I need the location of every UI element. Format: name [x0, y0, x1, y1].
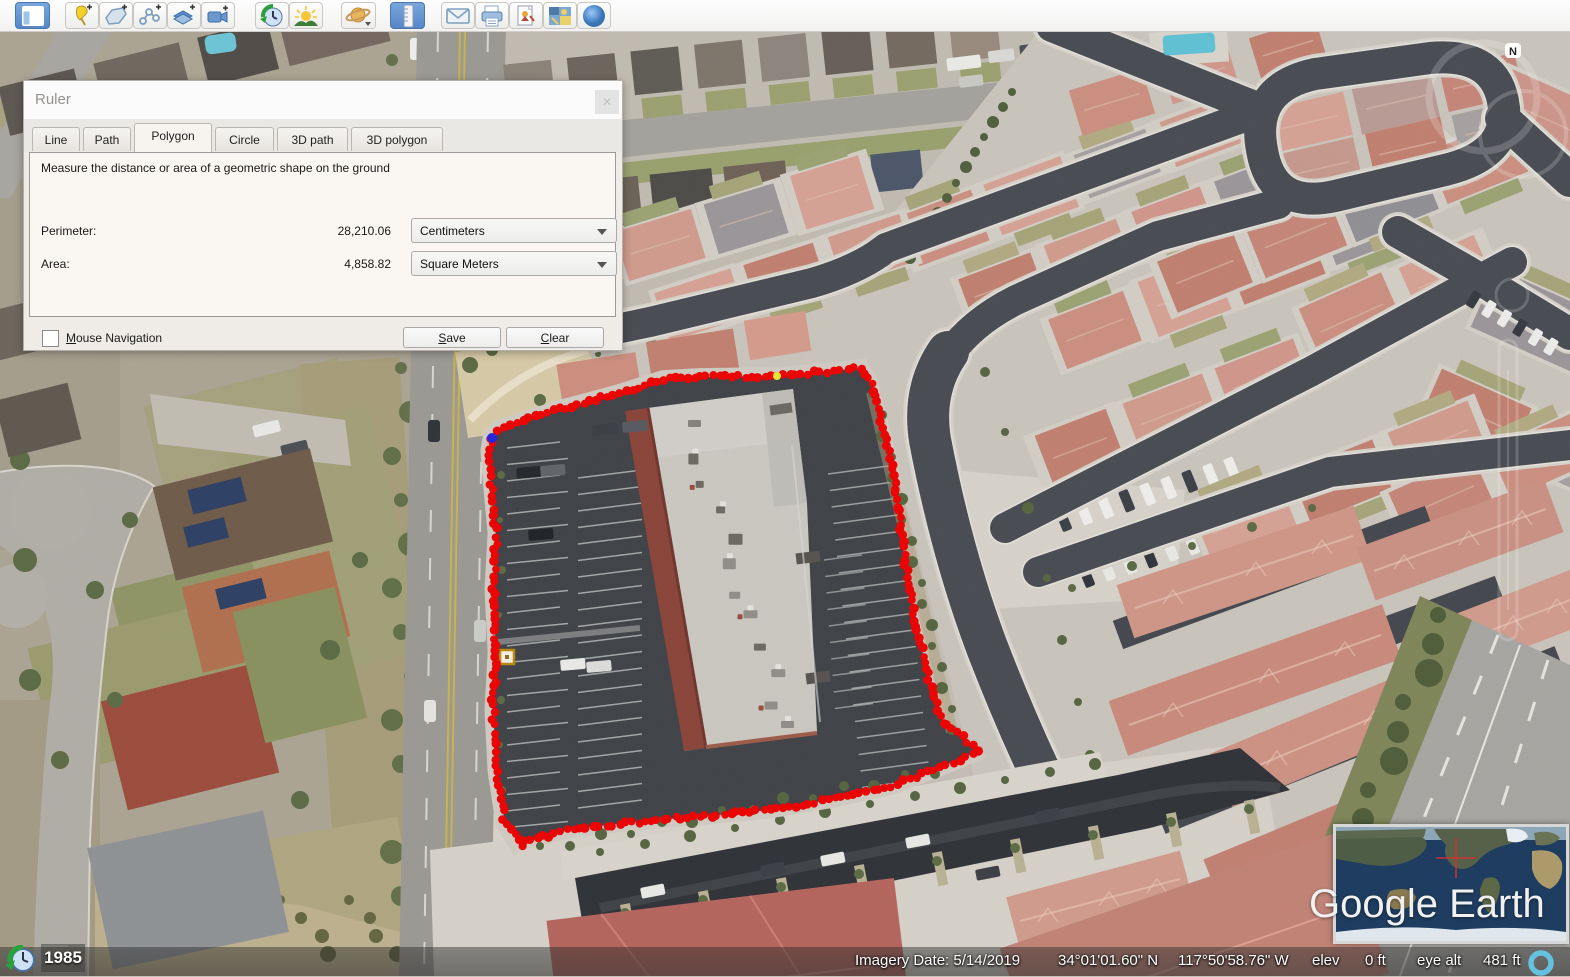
svg-text:N: N	[1509, 46, 1517, 58]
